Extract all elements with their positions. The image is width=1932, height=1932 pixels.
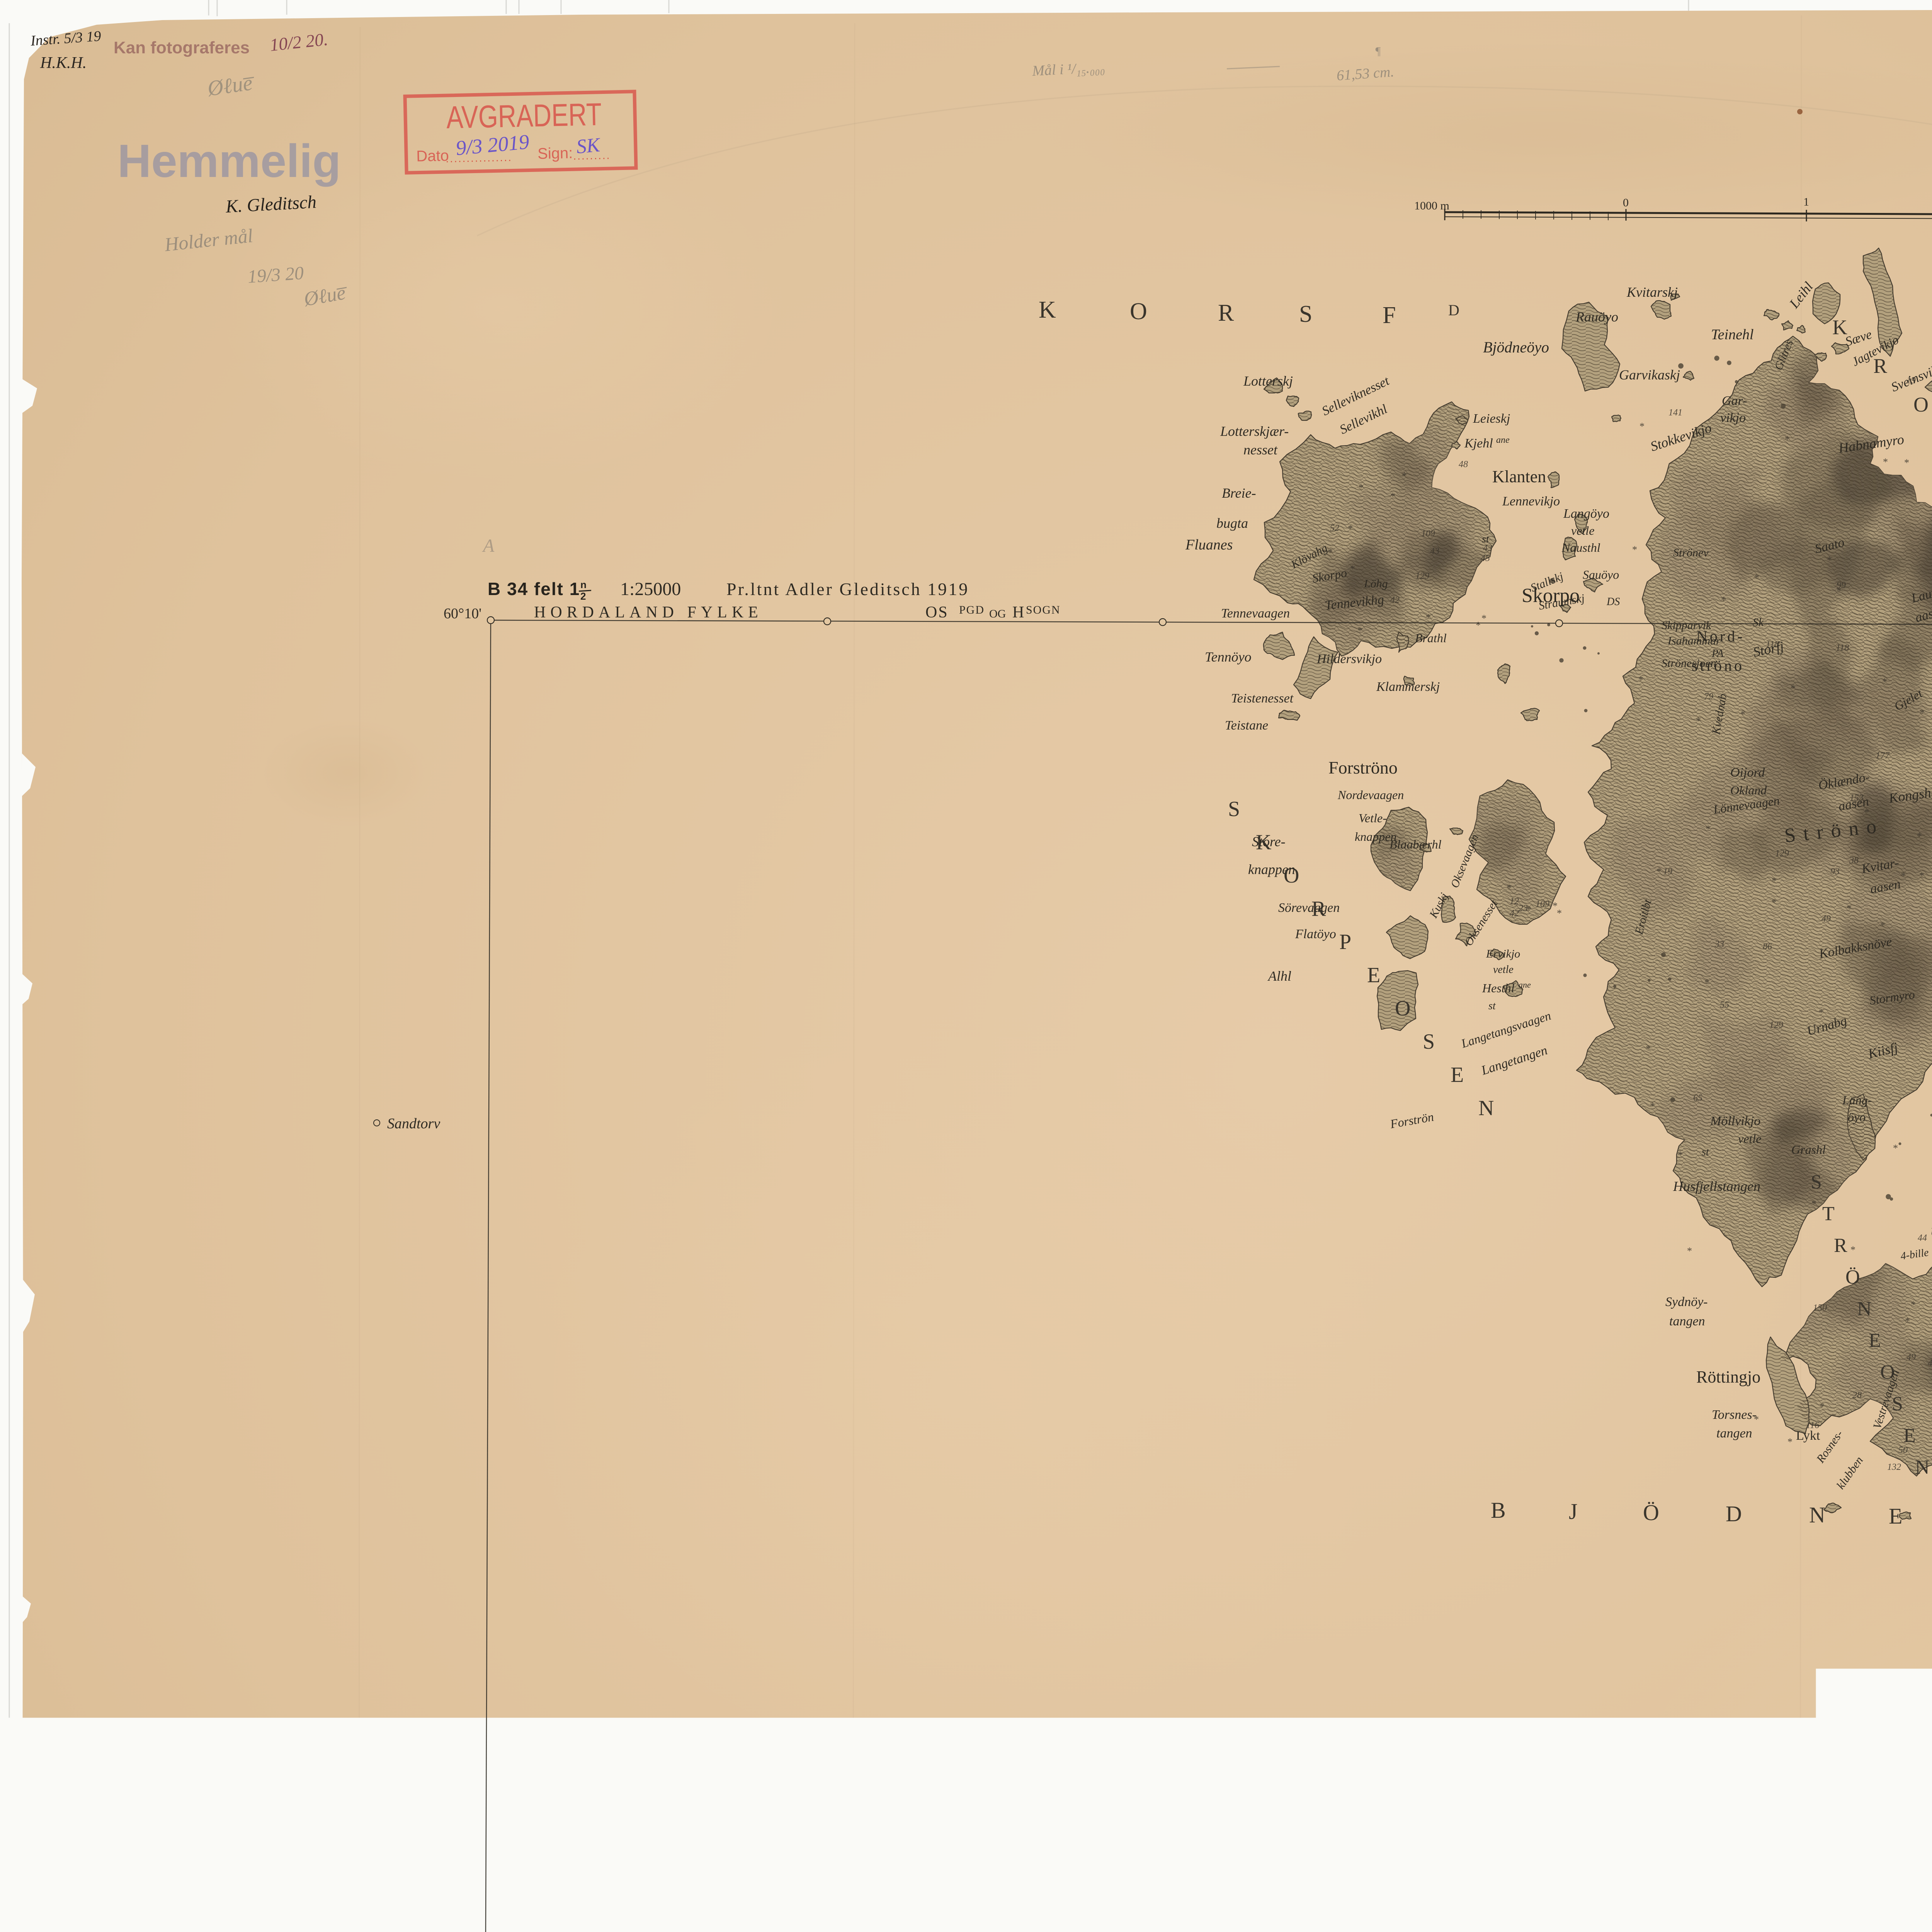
svg-text:52: 52 (1330, 523, 1339, 533)
svg-text:st: st (1702, 1146, 1709, 1158)
svg-text:E: E (1367, 963, 1381, 987)
svg-text:49: 49 (1906, 1352, 1916, 1362)
svg-text:P: P (1339, 930, 1352, 954)
svg-text:Unga Lok: Unga Lok (1930, 1226, 1932, 1238)
svg-text:1000 m: 1000 m (1414, 199, 1449, 212)
svg-text:*: * (1901, 870, 1906, 881)
svg-text:SK: SK (575, 134, 602, 158)
svg-text:177: 177 (1876, 751, 1890, 761)
svg-text:S: S (1423, 1030, 1435, 1054)
svg-text:Brathl: Brathl (1415, 631, 1447, 645)
svg-text:Teinehl: Teinehl (1711, 327, 1754, 343)
svg-text:*: * (1819, 1007, 1824, 1018)
svg-text:109: 109 (1421, 529, 1435, 539)
svg-text:E: E (1869, 1330, 1882, 1352)
svg-text:HORDALAND FYLKE: HORDALAND FYLKE (534, 604, 763, 621)
svg-text:0: 0 (1623, 196, 1629, 209)
svg-text:Dato: Dato (416, 147, 449, 165)
svg-text:*: * (1787, 1436, 1793, 1447)
svg-text:S: S (1811, 1171, 1823, 1193)
svg-text:F: F (1383, 302, 1396, 328)
svg-text:*: * (1476, 620, 1481, 631)
svg-text:Tennöyo: Tennöyo (1205, 649, 1252, 665)
svg-text:Kjehl: Kjehl (1464, 436, 1493, 451)
svg-text:H: H (1012, 604, 1024, 621)
svg-text:Bjödneöyo: Bjödneöyo (1483, 338, 1549, 356)
svg-text:E: E (1889, 1503, 1903, 1529)
svg-text:2: 2 (580, 590, 586, 602)
svg-text:A: A (482, 536, 495, 556)
svg-text:bugta: bugta (1216, 515, 1248, 531)
svg-text:vetle: vetle (1738, 1132, 1761, 1146)
svg-text:OG: OG (989, 607, 1006, 620)
svg-text:*: * (1820, 1401, 1825, 1412)
svg-text:*: * (1650, 1100, 1655, 1112)
svg-text:AVGRADERT: AVGRADERT (446, 97, 602, 135)
svg-text:Sk: Sk (1753, 616, 1764, 629)
svg-text:K: K (1039, 297, 1057, 323)
svg-text:44: 44 (1918, 1233, 1927, 1243)
svg-text:*: * (1919, 870, 1924, 881)
svg-text:*: * (1791, 683, 1796, 694)
svg-text:*: * (1920, 707, 1925, 719)
svg-text:109: 109 (1536, 899, 1549, 909)
svg-text:vetle: vetle (1493, 964, 1514, 976)
svg-text:Okland: Okland (1730, 783, 1767, 797)
svg-text:42: 42 (1390, 595, 1400, 605)
svg-text:79: 79 (1704, 692, 1713, 702)
svg-text:Flatöyo: Flatöyo (1295, 927, 1336, 941)
svg-text:S: S (1228, 797, 1241, 821)
svg-text:n: n (580, 579, 587, 590)
svg-text:R: R (1834, 1235, 1848, 1257)
svg-text:Vetle-: Vetle- (1359, 811, 1387, 825)
svg-text:Löhg: Löhg (1364, 577, 1388, 590)
svg-text:*: * (1754, 572, 1759, 583)
svg-text:141: 141 (1668, 408, 1682, 418)
svg-text:*: * (1772, 897, 1777, 908)
svg-text:Langöyo: Langöyo (1563, 507, 1609, 521)
svg-text:*: * (1883, 456, 1888, 468)
svg-text:49: 49 (1821, 914, 1831, 924)
svg-text:*: * (1357, 625, 1362, 636)
svg-text:132: 132 (1887, 1462, 1901, 1472)
svg-text:*: * (1696, 715, 1701, 726)
svg-text:*: * (1893, 1143, 1898, 1154)
svg-text:Teistenesset: Teistenesset (1231, 691, 1294, 706)
svg-text:Rauöyo: Rauöyo (1575, 309, 1618, 325)
svg-text:Forströno: Forströno (1328, 758, 1398, 777)
svg-text:Store-: Store- (1252, 834, 1286, 849)
svg-text:*: * (1905, 1316, 1910, 1327)
svg-text:Lang-: Lang- (1842, 1093, 1872, 1107)
svg-text:DS: DS (1606, 596, 1620, 608)
svg-text:*: * (1426, 612, 1431, 623)
svg-text:B 34 felt 1: B 34 felt 1 (488, 579, 580, 599)
svg-text:¶: ¶ (1375, 45, 1381, 58)
svg-text:129: 129 (1769, 1020, 1783, 1030)
svg-text:129: 129 (1775, 849, 1789, 859)
svg-text:150: 150 (1813, 1303, 1827, 1313)
svg-text:Leieskj: Leieskj (1473, 412, 1510, 426)
svg-text:Gar-: Gar- (1722, 394, 1747, 408)
svg-text:*: * (1847, 903, 1852, 914)
svg-text:*: * (1740, 709, 1745, 720)
svg-text:55: 55 (1720, 1000, 1729, 1010)
svg-text:28: 28 (1852, 1390, 1862, 1400)
svg-text:Kvitarskj: Kvitarskj (1626, 284, 1678, 300)
svg-text:Röttingjo: Röttingjo (1696, 1367, 1760, 1386)
svg-text:vetle: vetle (1571, 524, 1594, 537)
svg-text:23: 23 (1519, 903, 1528, 913)
svg-text:Ö: Ö (1845, 1266, 1861, 1288)
svg-text:*: * (1850, 1244, 1855, 1255)
svg-text:Sauöyo: Sauöyo (1583, 568, 1619, 582)
svg-text:ane: ane (1496, 435, 1510, 445)
svg-text:B: B (1491, 1498, 1507, 1523)
svg-text:12: 12 (1510, 896, 1519, 906)
svg-text:Fluanes: Fluanes (1185, 537, 1233, 553)
svg-text:öyo: öyo (1848, 1110, 1866, 1124)
svg-text:19/3 20: 19/3 20 (247, 263, 304, 287)
svg-text:Nausthl: Nausthl (1561, 541, 1600, 554)
svg-text:*: * (1827, 554, 1832, 566)
svg-text:*: * (1632, 544, 1637, 555)
svg-text:Hemmelig: Hemmelig (117, 134, 341, 187)
svg-text:65: 65 (1693, 1093, 1702, 1103)
svg-text:33: 33 (1714, 939, 1724, 949)
svg-text:O: O (1913, 393, 1929, 416)
svg-text:Grashl: Grashl (1791, 1143, 1826, 1156)
svg-text:Sydnöy-: Sydnöy- (1665, 1295, 1708, 1309)
svg-text:Ö: Ö (1643, 1500, 1660, 1525)
svg-text:93: 93 (1830, 867, 1840, 877)
svg-text:*: * (1706, 823, 1711, 835)
svg-text:42: 42 (1510, 908, 1519, 918)
svg-text:J: J (1569, 1499, 1578, 1524)
svg-text:1:25000: 1:25000 (620, 579, 681, 599)
svg-text:*: * (1656, 866, 1662, 877)
svg-text:*: * (1772, 876, 1777, 887)
svg-text:N: N (1915, 1456, 1930, 1478)
svg-text:*: * (1880, 920, 1885, 931)
svg-text:*: * (1687, 1245, 1692, 1257)
svg-text:Ervikjo: Ervikjo (1486, 947, 1520, 960)
svg-text:*: * (1904, 457, 1909, 468)
svg-text:129: 129 (1415, 571, 1429, 581)
svg-text:45: 45 (1928, 1358, 1932, 1368)
svg-text:*: * (1348, 523, 1353, 534)
svg-text:Pr.ltnt Adler Gleditsch 1919: Pr.ltnt Adler Gleditsch 1919 (726, 579, 969, 599)
svg-text:Kan fotograferes: Kan fotograferes (114, 38, 250, 57)
svg-text:Nordevaagen: Nordevaagen (1337, 788, 1404, 802)
svg-text:PA: PA (1711, 648, 1724, 660)
svg-text:vikjo: vikjo (1720, 411, 1746, 425)
svg-text:nesset: nesset (1243, 442, 1278, 457)
svg-text:*: * (1638, 674, 1643, 685)
svg-text:Sign:: Sign: (537, 145, 573, 162)
svg-text:R: R (1218, 300, 1235, 326)
svg-text:Lotterskj: Lotterskj (1243, 373, 1293, 389)
svg-text:E: E (1451, 1063, 1464, 1087)
svg-text:D: D (1448, 301, 1460, 319)
svg-text:PGD: PGD (959, 604, 985, 616)
svg-text:48: 48 (1459, 459, 1468, 469)
svg-text:O: O (1130, 298, 1148, 325)
svg-text:Blaabærhl: Blaabærhl (1389, 837, 1442, 851)
svg-text:*: * (1721, 595, 1726, 606)
svg-text:st: st (1488, 1000, 1496, 1012)
svg-text:Torsnes-: Torsnes- (1712, 1408, 1757, 1422)
svg-text:*: * (1402, 470, 1407, 481)
svg-text:Sandtorv: Sandtorv (387, 1116, 440, 1132)
svg-text:*: * (1646, 1043, 1651, 1054)
svg-text:Husfjellstangen: Husfjellstangen (1673, 1179, 1760, 1194)
svg-text:19: 19 (1663, 867, 1672, 877)
svg-text:*: * (1911, 1299, 1916, 1310)
svg-text:Breie-: Breie- (1222, 485, 1256, 501)
svg-text:Lennevikjo: Lennevikjo (1502, 494, 1560, 509)
svg-text:Oijord: Oijord (1730, 765, 1765, 780)
svg-text:Klammerskj: Klammerskj (1376, 680, 1440, 694)
svg-text:OS: OS (925, 604, 949, 621)
svg-text:S: S (1299, 301, 1313, 327)
svg-text:*: * (1882, 676, 1887, 687)
svg-text:Teistane: Teistane (1225, 718, 1268, 733)
svg-text:T: T (1822, 1203, 1835, 1225)
svg-text:Klanten: Klanten (1492, 467, 1546, 486)
svg-text:Strönev: Strönev (1673, 546, 1709, 559)
svg-text:Hesthl: Hesthl (1482, 981, 1515, 995)
svg-text:*: * (1678, 1150, 1683, 1161)
svg-text:Alhl: Alhl (1267, 968, 1291, 984)
svg-text:D: D (1726, 1501, 1743, 1526)
svg-text:Möllvikjo: Möllvikjo (1710, 1114, 1760, 1128)
svg-text:Nord-: Nord- (1696, 628, 1745, 645)
svg-text:*: * (1390, 491, 1395, 502)
svg-text:knappen: knappen (1248, 862, 1295, 877)
svg-text:tangen: tangen (1669, 1314, 1705, 1328)
svg-text:45: 45 (1481, 553, 1490, 563)
svg-text:*: * (1639, 421, 1645, 432)
svg-text:Tennevaagen: Tennevaagen (1221, 606, 1290, 621)
svg-text:N: N (1809, 1502, 1826, 1527)
svg-text:Lykt: Lykt (1796, 1429, 1820, 1443)
svg-text:*: * (1704, 977, 1709, 988)
svg-text:*: * (1837, 585, 1842, 597)
svg-text:*: * (1507, 883, 1512, 894)
svg-text:1: 1 (1803, 196, 1809, 208)
svg-text:tangen: tangen (1716, 1426, 1752, 1440)
svg-text:N: N (1478, 1096, 1495, 1120)
svg-text:Lotterskjær-: Lotterskjær- (1220, 423, 1289, 439)
svg-text:*: * (1481, 613, 1486, 624)
svg-text:*: * (1811, 1198, 1816, 1209)
svg-text:ane: ane (1519, 980, 1531, 990)
svg-text:118: 118 (1836, 643, 1849, 653)
svg-text:*: * (1785, 434, 1790, 445)
svg-text:*: * (1917, 831, 1922, 842)
svg-text:st: st (1482, 533, 1490, 545)
svg-text:SOGN: SOGN (1026, 604, 1061, 616)
svg-text:Hildersvikjo: Hildersvikjo (1316, 652, 1382, 666)
svg-text:*: * (1359, 482, 1364, 493)
svg-text:Garvikaskj: Garvikaskj (1619, 367, 1680, 383)
svg-text:43: 43 (1430, 546, 1439, 556)
svg-text:H.K.H.: H.K.H. (40, 54, 87, 72)
svg-text:38: 38 (1849, 855, 1859, 866)
svg-text:*: * (1553, 900, 1558, 912)
svg-text:O: O (1395, 997, 1411, 1020)
svg-text:*: * (1350, 563, 1355, 575)
svg-text:60°10': 60°10' (444, 605, 481, 622)
svg-text:E: E (1903, 1425, 1917, 1447)
svg-text:86: 86 (1763, 942, 1772, 952)
svg-text:N: N (1857, 1298, 1872, 1320)
svg-text:Sörevaagen: Sörevaagen (1278, 901, 1340, 915)
